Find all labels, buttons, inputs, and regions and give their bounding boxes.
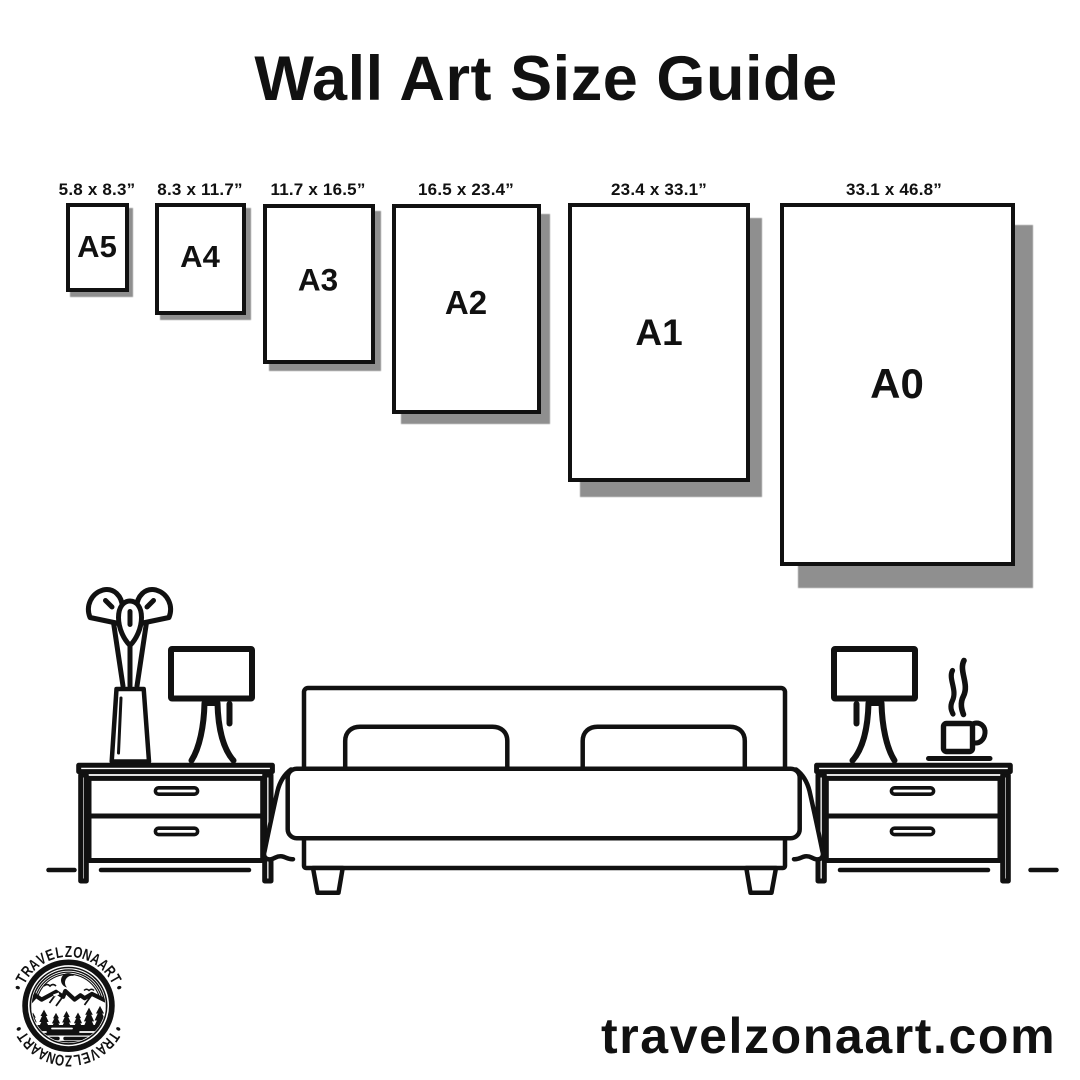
svg-text:Z: Z bbox=[65, 943, 72, 960]
svg-text:L: L bbox=[54, 944, 64, 962]
svg-text:Z: Z bbox=[65, 1052, 72, 1069]
